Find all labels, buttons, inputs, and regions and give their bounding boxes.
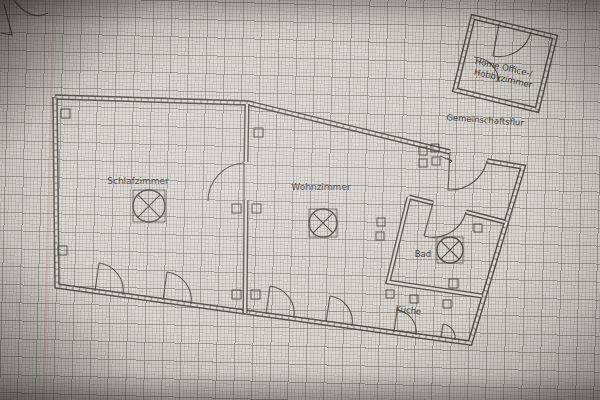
socket-icon	[432, 157, 440, 165]
socket-icon	[449, 279, 458, 288]
socket-icon	[410, 295, 418, 303]
floorplan-photo: Schlafzimmer Wohnzimmer Bad Küche Gemein…	[0, 0, 600, 400]
corner-sketch	[1, 0, 48, 35]
socket-icon	[251, 290, 260, 299]
socket-icon	[419, 159, 427, 167]
bad-door-swing	[424, 203, 466, 237]
ceiling-light-icon	[133, 190, 165, 222]
wohnzimmer-label: Wohnzimmer	[291, 182, 351, 192]
socket-icon	[61, 109, 70, 118]
socket-icon	[254, 128, 263, 137]
bad-label: Bad	[415, 249, 431, 259]
ceiling-light-icon	[309, 209, 337, 237]
floorplan-drawing: Schlafzimmer Wohnzimmer Bad Küche Gemein…	[0, 0, 600, 400]
ceiling-light-icon	[437, 237, 463, 263]
socket-icon	[252, 204, 261, 213]
socket-icon	[377, 218, 385, 226]
window-door-swings	[95, 263, 455, 340]
socket-icon	[376, 232, 384, 240]
interior-wall-schlafzimmer-wohnzimmer	[245, 104, 247, 313]
ceiling-light-icons	[133, 190, 463, 263]
socket-icons	[58, 109, 482, 308]
socket-icon	[474, 224, 482, 232]
schlafzimmer-label: Schlafzimmer	[107, 176, 169, 186]
socket-icon	[386, 290, 394, 298]
schlafzimmer-door-swing	[208, 163, 244, 201]
gemeinschaftsflur-label: Gemeinschaftsflur	[446, 112, 525, 127]
socket-icon	[443, 300, 451, 308]
socket-icon	[232, 204, 241, 213]
apartment-outer-walls	[55, 97, 523, 343]
entry-door-swing	[448, 152, 487, 190]
kueche-label: Küche	[395, 303, 422, 316]
socket-icon	[232, 290, 241, 299]
